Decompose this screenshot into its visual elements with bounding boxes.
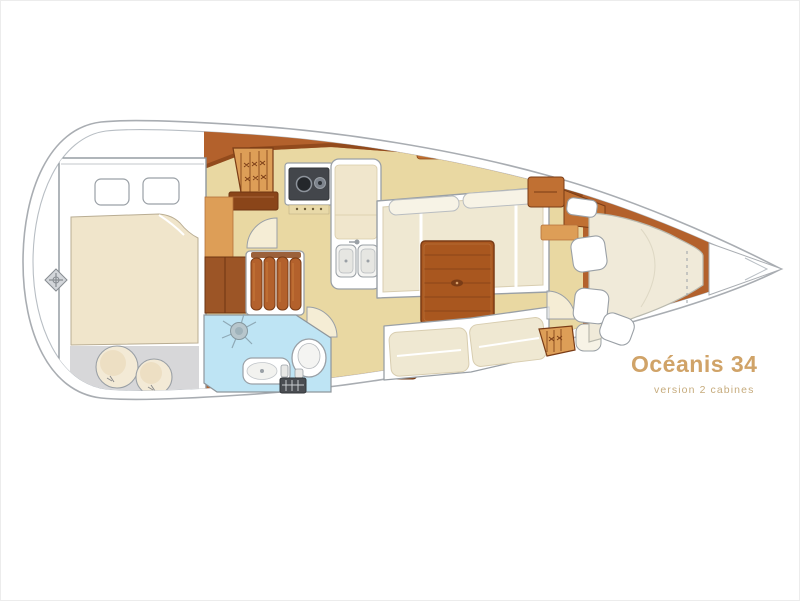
companionway-steps [246, 251, 304, 315]
saloon-table [421, 241, 494, 324]
toilet [292, 339, 326, 378]
galley-shelf [229, 192, 278, 210]
stove [285, 163, 333, 214]
head-compartment [204, 314, 331, 393]
aft-cabin [59, 158, 206, 399]
pillow [143, 178, 179, 204]
model-title: Océanis 34 [631, 351, 800, 378]
aft-double-berth [71, 214, 198, 345]
pillow [566, 197, 598, 218]
entry-shelf [541, 225, 578, 240]
port-wall-panel [205, 197, 233, 257]
model-version: version 2 cabines [654, 384, 800, 396]
floor-grate-icon [280, 378, 306, 393]
pillow [95, 179, 129, 205]
galley-counter [331, 159, 381, 289]
floorplan-canvas [1, 1, 800, 601]
salon [377, 187, 549, 380]
round-cushion [136, 359, 172, 395]
boat-floorplan: Océanis 34 version 2 cabines [0, 0, 800, 601]
pillow [570, 235, 608, 273]
round-cushion [96, 346, 138, 388]
